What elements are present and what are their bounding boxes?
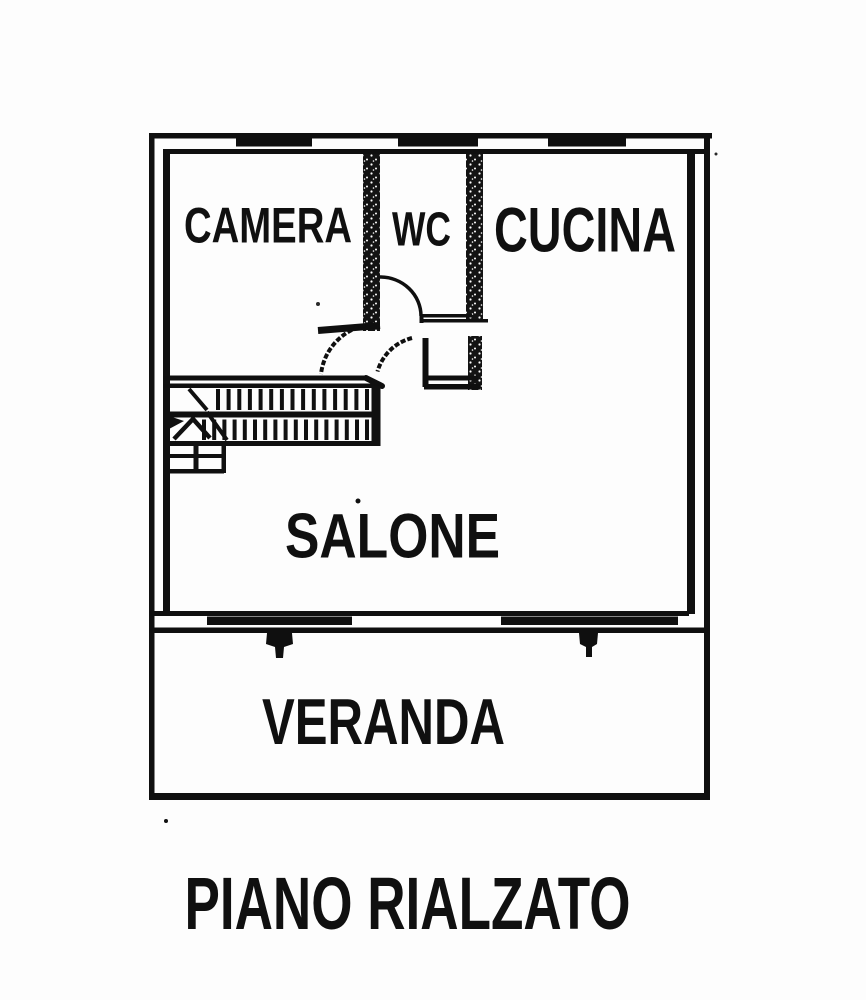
svg-text:CUCINA: CUCINA	[494, 196, 676, 266]
svg-text:VERANDA: VERANDA	[262, 685, 505, 758]
svg-text:PIANO RIALZATO: PIANO RIALZATO	[185, 862, 631, 945]
svg-text:WC: WC	[392, 204, 451, 257]
svg-text:SALONE: SALONE	[285, 502, 500, 572]
svg-text:CAMERA: CAMERA	[184, 198, 352, 254]
